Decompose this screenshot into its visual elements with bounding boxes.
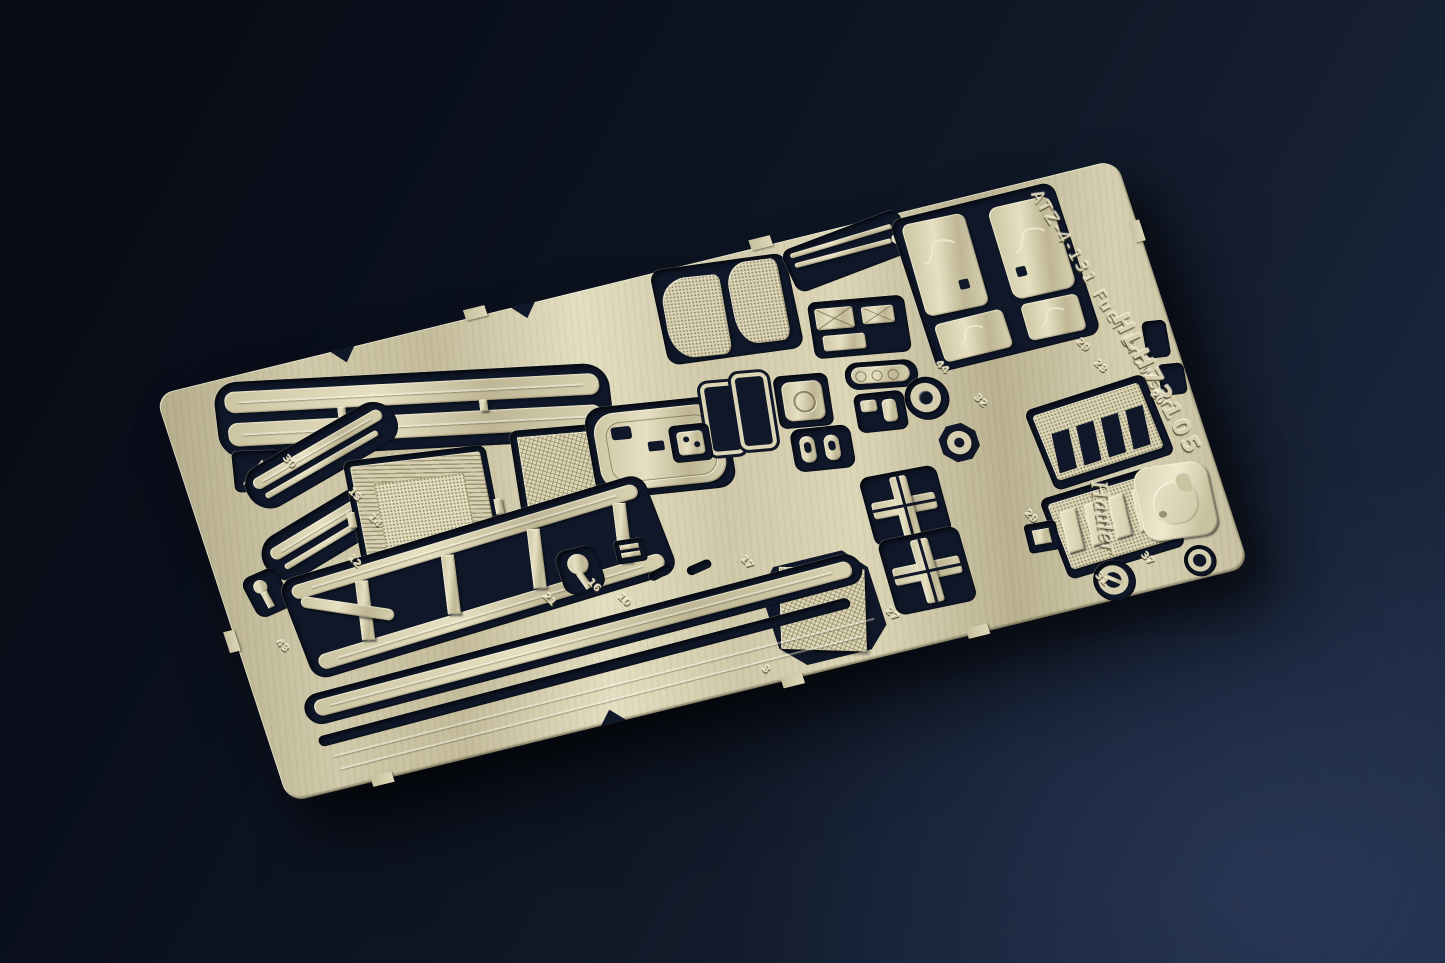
- part-number: 43: [273, 637, 291, 654]
- part-number: 10: [615, 591, 633, 608]
- part-number: 23: [1091, 358, 1109, 375]
- hatch-plate-part: [860, 304, 895, 324]
- cross-brace: [876, 525, 978, 616]
- square-part: [1023, 520, 1062, 554]
- edge-notch: [510, 301, 540, 321]
- hook-cluster: [852, 390, 909, 434]
- hauler-logo-emblem: [1131, 459, 1221, 543]
- s-link-cutout: [685, 558, 713, 576]
- part-number: 29: [1074, 337, 1092, 354]
- part-number: 17: [738, 554, 756, 571]
- c-clamp-part: [1180, 542, 1221, 580]
- sprue-tab: [463, 305, 488, 321]
- part-number: 32: [971, 392, 989, 409]
- bracket-cluster: [889, 181, 1102, 373]
- edge-notch: [597, 707, 627, 726]
- photoetch-fret-plate: ATZ-4-131 Fuel Browser HLH72105 Hauler 3…: [155, 159, 1250, 802]
- part-number: 3: [759, 664, 772, 676]
- double-bar-part: [613, 537, 648, 565]
- hatch-plate-part: [814, 306, 856, 331]
- photo-scene: { "photo": { "background_top_left": "#07…: [0, 0, 1445, 963]
- sprue-tab: [370, 771, 395, 787]
- hatch-plate-cluster: [807, 295, 913, 360]
- sprue-tab: [780, 673, 805, 689]
- hook-cluster: [789, 424, 857, 473]
- sprue-tab: [223, 630, 241, 653]
- cap-plate: [772, 372, 835, 429]
- edge-notch: [329, 345, 359, 365]
- sprue-tab: [966, 623, 991, 639]
- sprue-tab: [1128, 219, 1146, 242]
- sprue-tab: [748, 235, 773, 251]
- hole-plate: [668, 422, 715, 463]
